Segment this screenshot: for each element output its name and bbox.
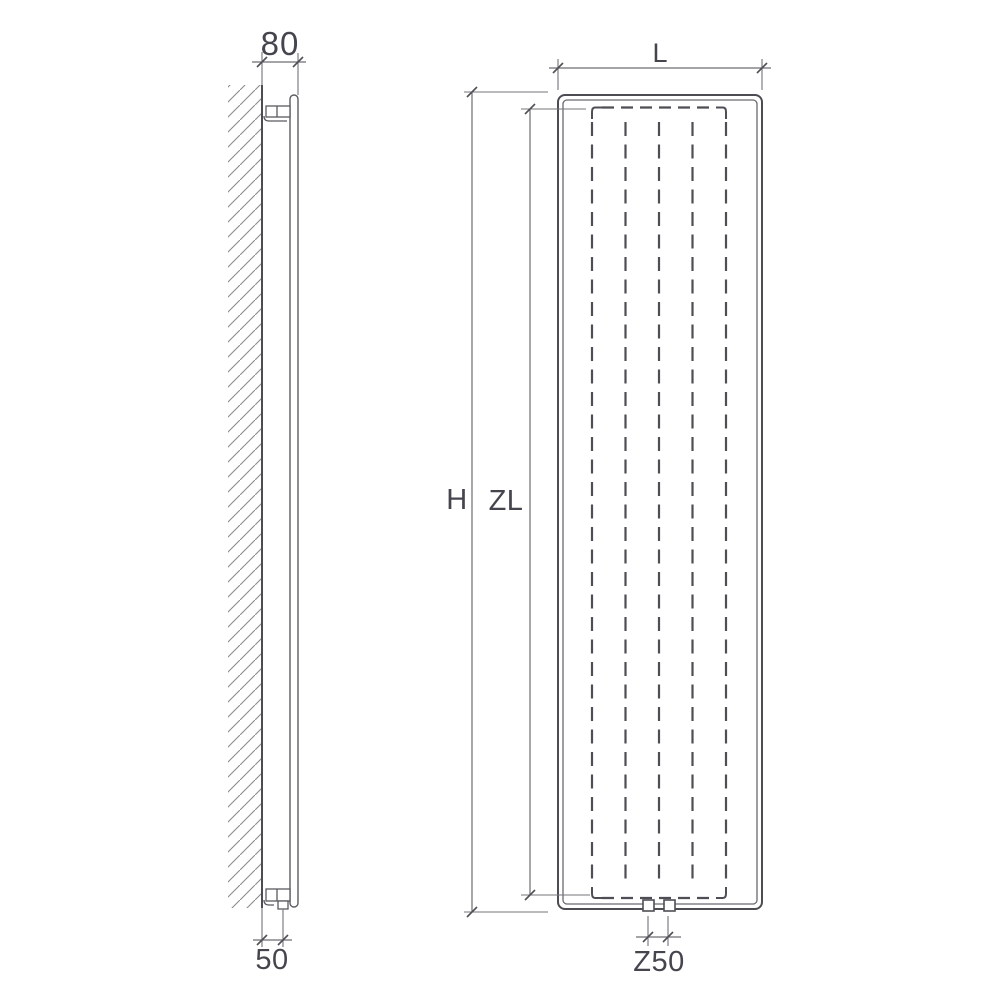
radiator-side-panel — [290, 95, 298, 907]
connection-stub-right — [664, 900, 675, 911]
radiator-dimension-diagram: 80 50 — [0, 0, 1000, 1000]
connection-stub-left — [643, 900, 654, 911]
mounting-bracket-top — [264, 106, 290, 121]
front-view: L H ZL — [446, 38, 771, 978]
technical-drawing: 80 50 — [0, 0, 1000, 1000]
height-dimension-label: H — [446, 484, 467, 516]
side-view: 80 50 — [228, 25, 306, 976]
dimension-offset-50: 50 — [253, 909, 292, 976]
dimension-depth-80: 80 — [252, 25, 306, 67]
depth-dimension-label: 80 — [261, 25, 300, 62]
top-header-left-corner — [592, 108, 602, 120]
wall-hatch — [228, 85, 262, 908]
dimension-length-L: L — [549, 38, 771, 90]
bottom-header-left-corner — [592, 887, 602, 898]
offset-dimension-label: 50 — [255, 944, 288, 976]
connection-spacing-dimension-label: Z50 — [633, 946, 684, 978]
dimension-inner-height-ZL: ZL — [489, 104, 590, 900]
dimension-connection-Z50: Z50 — [633, 916, 684, 978]
mounting-bracket-bottom — [264, 889, 290, 909]
internal-channels — [592, 108, 726, 899]
bottom-header-right-corner — [716, 887, 726, 898]
inner-height-dimension-label: ZL — [489, 485, 524, 517]
length-dimension-label: L — [652, 38, 667, 68]
top-header-right-corner — [716, 108, 726, 120]
